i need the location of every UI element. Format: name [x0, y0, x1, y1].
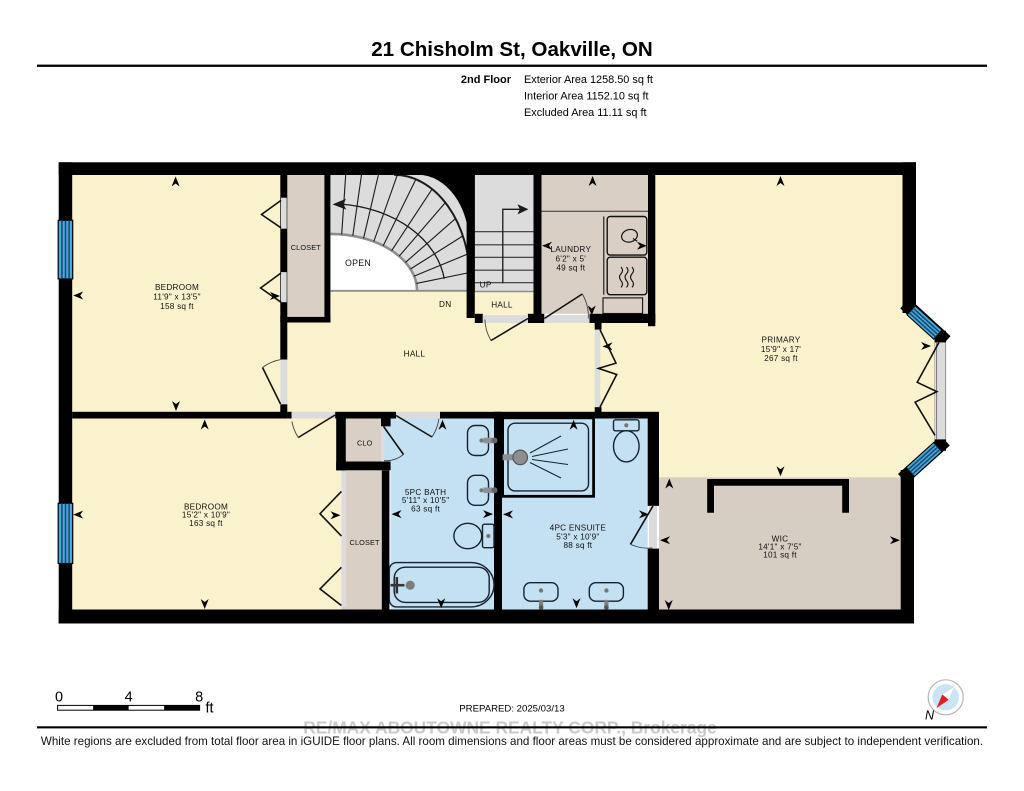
svg-text:4: 4 — [125, 690, 133, 706]
svg-text:158 sq ft: 158 sq ft — [160, 302, 194, 311]
svg-text:PREPARED: 2025/03/13: PREPARED: 2025/03/13 — [459, 704, 564, 715]
svg-text:CLO: CLO — [357, 439, 373, 448]
svg-text:CLOSET: CLOSET — [291, 243, 321, 252]
svg-text:15'9" x 17': 15'9" x 17' — [761, 345, 801, 354]
svg-text:21 Chisholm St, Oakville, ON: 21 Chisholm St, Oakville, ON — [371, 38, 653, 61]
svg-text:Excluded Area 11.11 sq ft: Excluded Area 11.11 sq ft — [524, 107, 647, 119]
svg-text:0: 0 — [55, 690, 63, 706]
svg-text:6'2" x 5': 6'2" x 5' — [556, 255, 587, 264]
svg-text:4PC ENSUITE: 4PC ENSUITE — [550, 523, 607, 532]
svg-text:HALL: HALL — [491, 301, 513, 310]
svg-text:63 sq ft: 63 sq ft — [411, 504, 440, 513]
svg-text:ft: ft — [206, 701, 214, 717]
svg-text:11'9" x 13'5": 11'9" x 13'5" — [153, 293, 201, 302]
svg-text:CLOSET: CLOSET — [350, 538, 380, 547]
svg-text:N: N — [925, 709, 935, 723]
svg-text:163 sq ft: 163 sq ft — [189, 519, 223, 528]
svg-text:2nd Floor: 2nd Floor — [461, 74, 512, 86]
svg-text:267 sq ft: 267 sq ft — [764, 354, 798, 363]
svg-text:HALL: HALL — [404, 349, 426, 358]
svg-text:LAUNDRY: LAUNDRY — [550, 245, 591, 254]
svg-text:Exterior Area 1258.50 sq ft: Exterior Area 1258.50 sq ft — [524, 74, 653, 86]
svg-text:UP: UP — [480, 281, 492, 290]
svg-text:White regions are excluded fro: White regions are excluded from total fl… — [41, 735, 983, 748]
svg-text:101 sq ft: 101 sq ft — [763, 551, 797, 560]
svg-text:BEDROOM: BEDROOM — [155, 283, 199, 292]
svg-text:8: 8 — [195, 690, 203, 706]
svg-text:OPEN: OPEN — [345, 258, 371, 268]
svg-text:88 sq ft: 88 sq ft — [563, 541, 592, 550]
svg-text:49 sq ft: 49 sq ft — [556, 264, 585, 273]
svg-text:DN: DN — [439, 300, 451, 309]
svg-text:Interior Area 1152.10 sq ft: Interior Area 1152.10 sq ft — [524, 90, 649, 102]
svg-text:PRIMARY: PRIMARY — [762, 335, 801, 344]
